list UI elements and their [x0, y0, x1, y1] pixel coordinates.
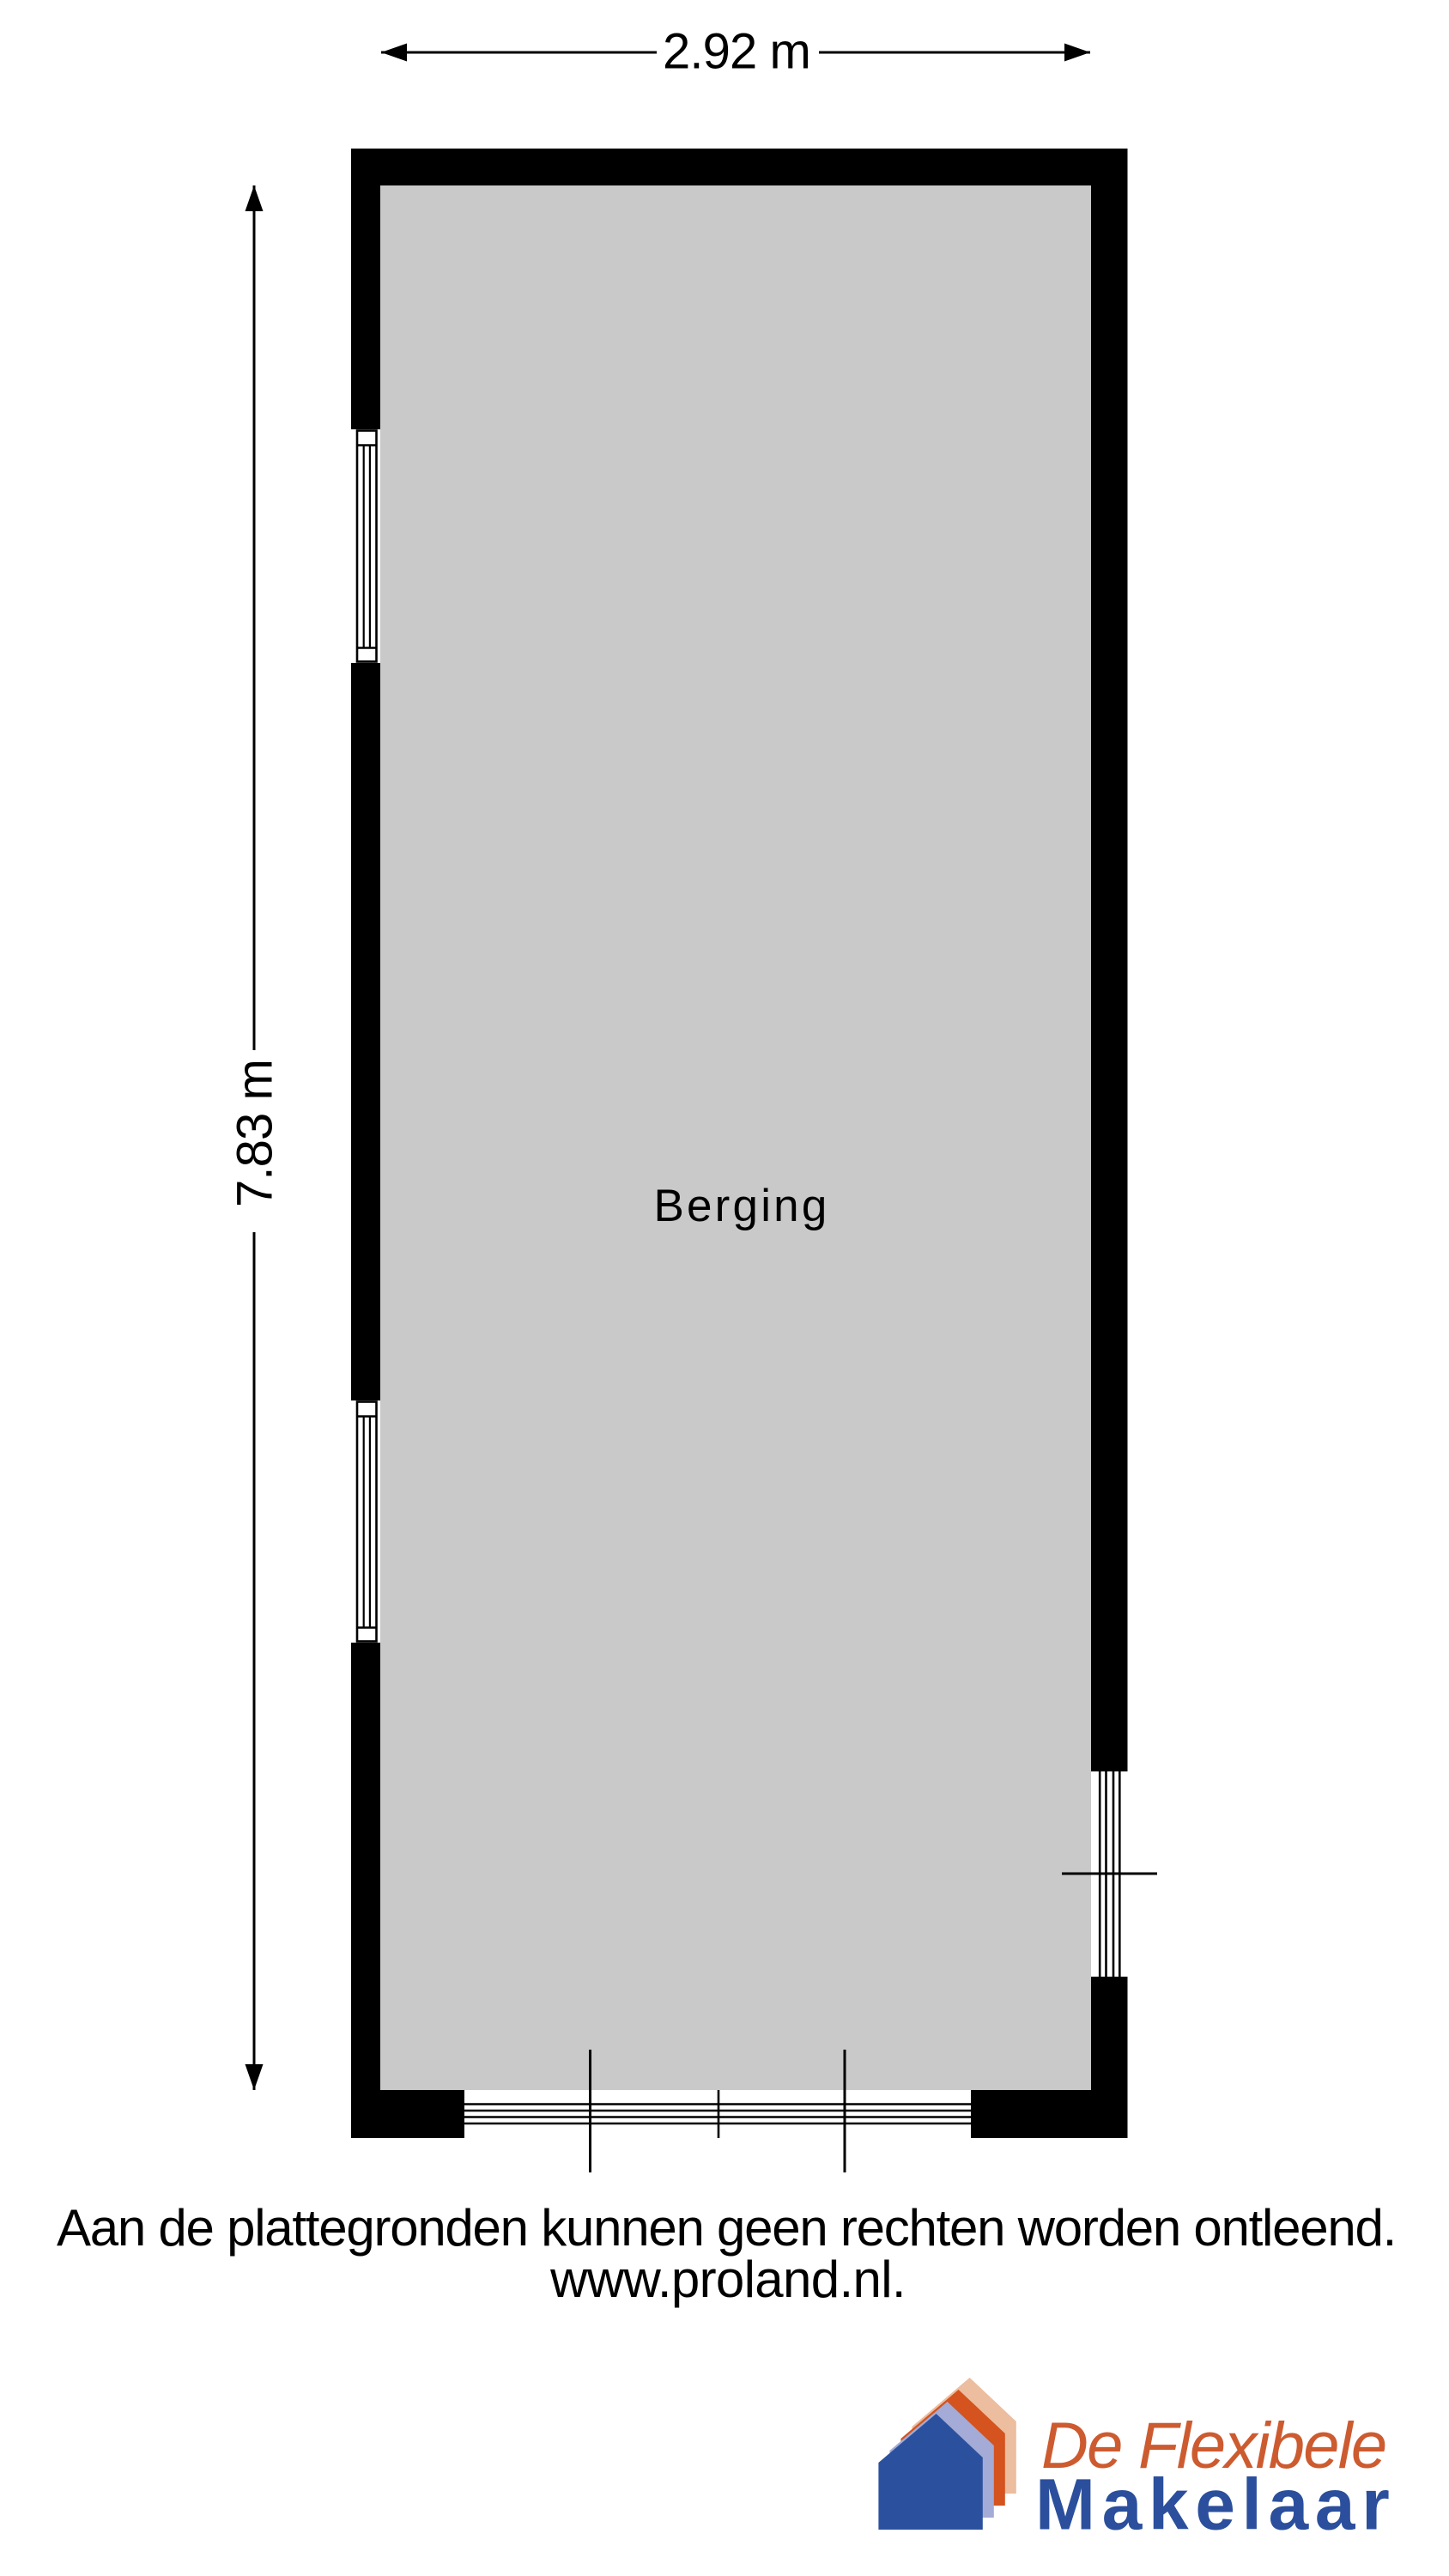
- svg-text:7.83 m: 7.83 m: [227, 1060, 283, 1207]
- svg-text:Aan de plattegronden kunnen ge: Aan de plattegronden kunnen geen rechten…: [57, 2199, 1396, 2257]
- svg-text:Berging: Berging: [653, 1181, 829, 1231]
- svg-text:Makelaar: Makelaar: [1035, 2464, 1396, 2545]
- svg-text:2.92 m: 2.92 m: [663, 24, 810, 80]
- svg-text:www.proland.nl.: www.proland.nl.: [549, 2251, 906, 2308]
